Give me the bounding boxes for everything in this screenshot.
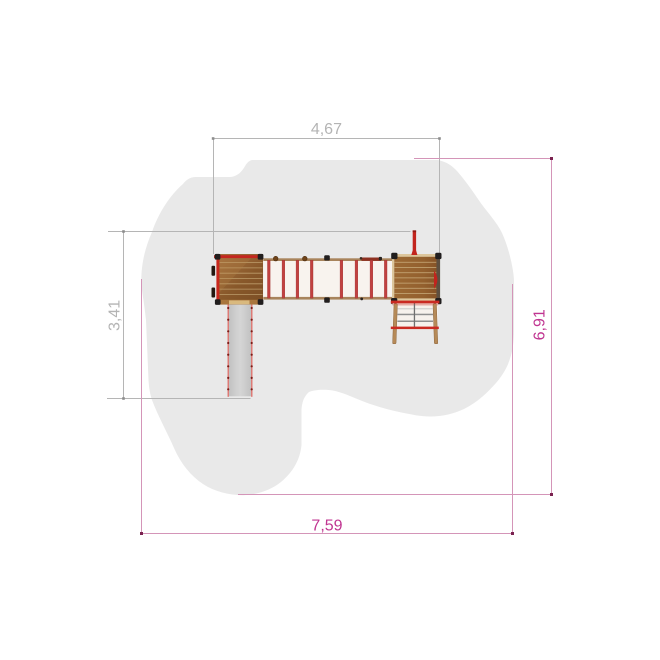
svg-text:7,59: 7,59	[311, 518, 342, 535]
svg-text:3,41: 3,41	[106, 300, 123, 331]
svg-text:6,91: 6,91	[532, 309, 549, 340]
svg-text:4,67: 4,67	[311, 121, 342, 138]
